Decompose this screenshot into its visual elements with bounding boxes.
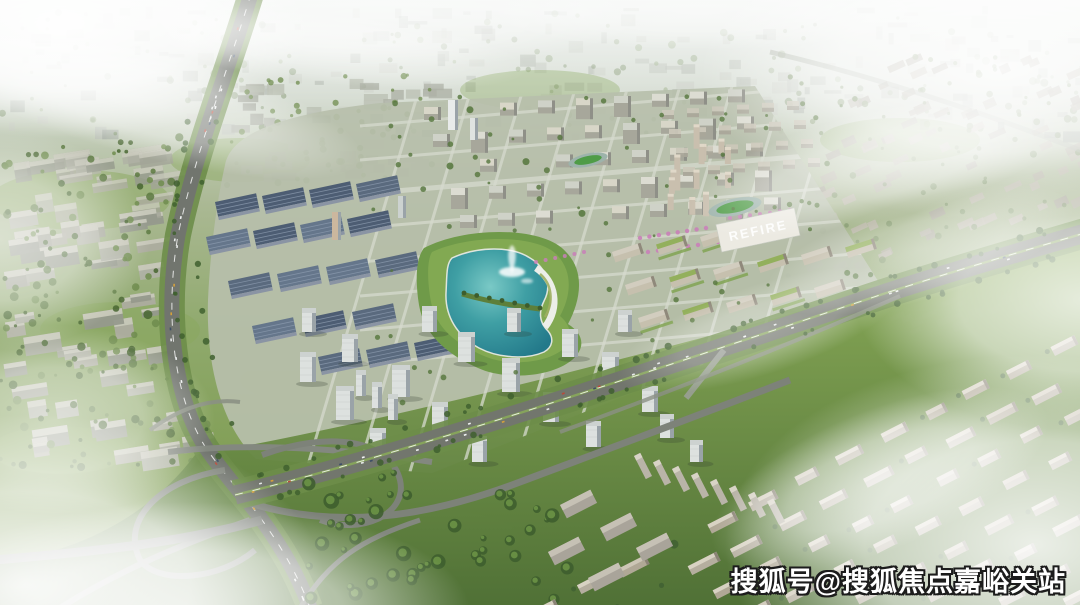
watermark-text: 搜狐号@搜狐焦点嘉峪关站 <box>731 568 1066 598</box>
render-canvas: REFIRE <box>0 0 1080 605</box>
aerial-city-render: REFIRE 搜狐号@搜狐焦点嘉峪关站 <box>0 0 1080 605</box>
fountain-mist <box>521 279 533 284</box>
